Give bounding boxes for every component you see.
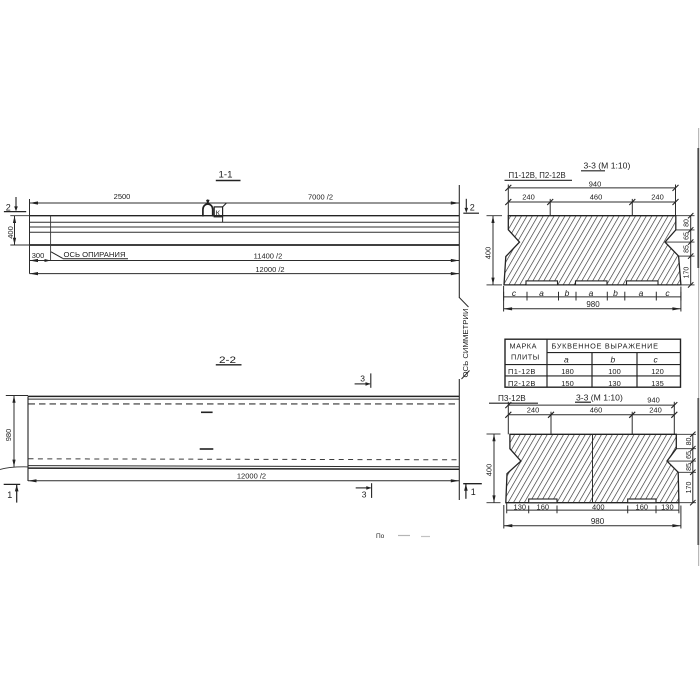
svg-text:240: 240: [649, 405, 662, 414]
svg-text:a: a: [639, 288, 644, 298]
svg-text:940: 940: [647, 396, 660, 405]
svg-text:65: 65: [686, 451, 693, 459]
svg-text:240: 240: [651, 193, 664, 202]
svg-text:160: 160: [537, 502, 550, 511]
svg-text:65: 65: [684, 232, 691, 240]
svg-text:b: b: [613, 288, 618, 298]
svg-text:b: b: [611, 355, 616, 365]
svg-text:ОСЬ ОПИРАНИЯ: ОСЬ ОПИРАНИЯ: [64, 250, 126, 259]
svg-text:130: 130: [661, 502, 674, 511]
svg-text:980: 980: [4, 429, 13, 442]
svg-text:3: 3: [360, 373, 365, 383]
svg-text:130: 130: [514, 502, 527, 511]
svg-text:П2-12В: П2-12В: [508, 379, 536, 388]
svg-text:c: c: [654, 355, 659, 365]
svg-text:МАРКА: МАРКА: [510, 342, 537, 351]
svg-text:a: a: [539, 288, 544, 298]
svg-text:400: 400: [6, 226, 15, 239]
svg-text:170: 170: [684, 267, 691, 279]
svg-text:300: 300: [32, 251, 45, 260]
svg-text:1: 1: [7, 490, 12, 500]
svg-text:100: 100: [608, 367, 621, 376]
svg-text:П1-12В, П2-12В: П1-12В, П2-12В: [509, 171, 566, 180]
svg-text:К: К: [216, 208, 221, 217]
svg-text:По: По: [376, 533, 385, 540]
svg-text:170: 170: [686, 482, 693, 494]
svg-text:7000 /2: 7000 /2: [308, 193, 333, 202]
svg-text:ПЛИТЫ: ПЛИТЫ: [511, 352, 540, 361]
svg-text:160: 160: [636, 502, 649, 511]
svg-text:400: 400: [484, 247, 493, 260]
svg-text:1: 1: [471, 487, 476, 497]
svg-text:2500: 2500: [114, 192, 131, 201]
svg-text:3-3 (М 1:10): 3-3 (М 1:10): [576, 392, 623, 402]
svg-text:80: 80: [684, 219, 691, 227]
svg-text:11400 /2: 11400 /2: [254, 252, 283, 261]
svg-text:П3-12В: П3-12В: [498, 394, 526, 403]
svg-text:БУКВЕННОЕ ВЫРАЖЕНИЕ: БУКВЕННОЕ ВЫРАЖЕНИЕ: [552, 341, 659, 350]
svg-text:980: 980: [586, 300, 600, 309]
svg-text:120: 120: [651, 367, 664, 376]
svg-text:400: 400: [485, 464, 494, 477]
svg-text:12000 /2: 12000 /2: [255, 265, 284, 274]
svg-text:240: 240: [527, 405, 540, 414]
svg-text:a: a: [589, 288, 594, 298]
svg-text:940: 940: [589, 179, 602, 188]
svg-text:460: 460: [590, 193, 603, 202]
svg-text:2: 2: [6, 202, 11, 212]
svg-text:2: 2: [470, 203, 475, 213]
svg-text:240: 240: [522, 193, 535, 202]
svg-text:85: 85: [684, 245, 691, 253]
svg-text:460: 460: [590, 405, 603, 414]
svg-text:1-1: 1-1: [219, 170, 233, 181]
svg-text:12000 /2: 12000 /2: [237, 471, 266, 480]
svg-text:a: a: [564, 355, 569, 365]
svg-text:180: 180: [561, 367, 574, 376]
svg-text:400: 400: [592, 502, 605, 511]
svg-text:980: 980: [591, 517, 605, 526]
svg-text:П1-12В: П1-12В: [508, 367, 536, 376]
svg-text:135: 135: [651, 379, 664, 388]
svg-text:3-3 (М 1:10): 3-3 (М 1:10): [584, 161, 631, 171]
svg-text:ОСЬ СИММЕТРИИ: ОСЬ СИММЕТРИИ: [461, 309, 470, 378]
svg-text:80: 80: [686, 438, 693, 446]
svg-text:85: 85: [686, 463, 693, 471]
svg-text:130: 130: [608, 379, 621, 388]
svg-text:150: 150: [561, 379, 574, 388]
svg-text:b: b: [565, 288, 570, 298]
svg-text:3: 3: [362, 490, 367, 500]
